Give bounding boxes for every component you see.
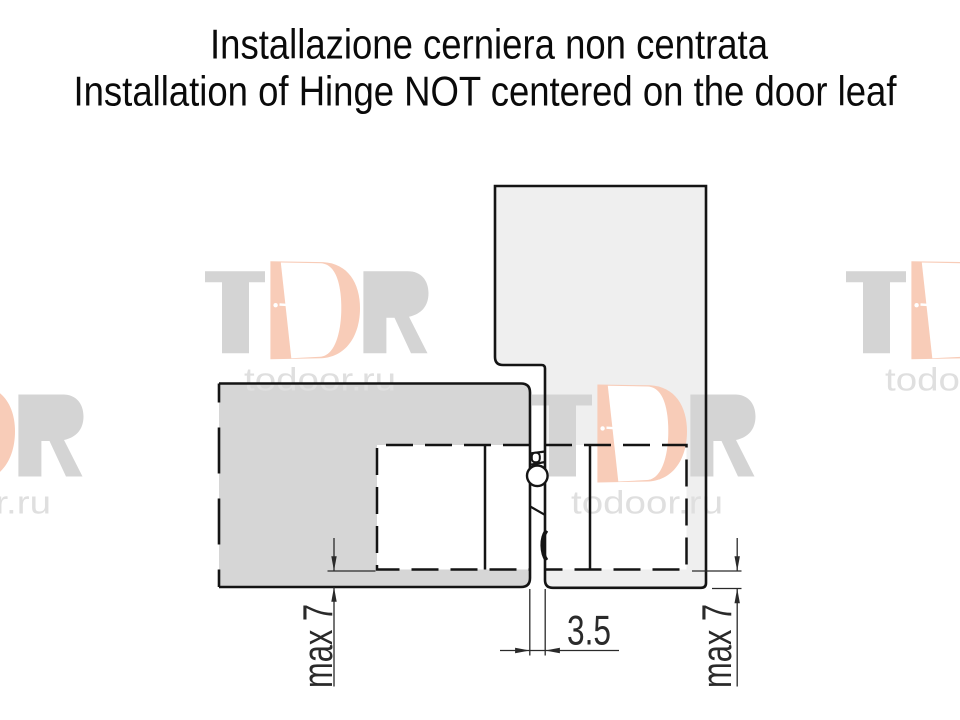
svg-text:Installation of Hinge NOT cent: Installation of Hinge NOT centered on th… — [74, 68, 897, 115]
svg-text:max 7: max 7 — [693, 604, 740, 688]
svg-text:Installazione cerniera non cen: Installazione cerniera non centrata — [210, 21, 769, 68]
svg-text:3.5: 3.5 — [567, 607, 611, 654]
svg-text:max 7: max 7 — [294, 604, 341, 688]
